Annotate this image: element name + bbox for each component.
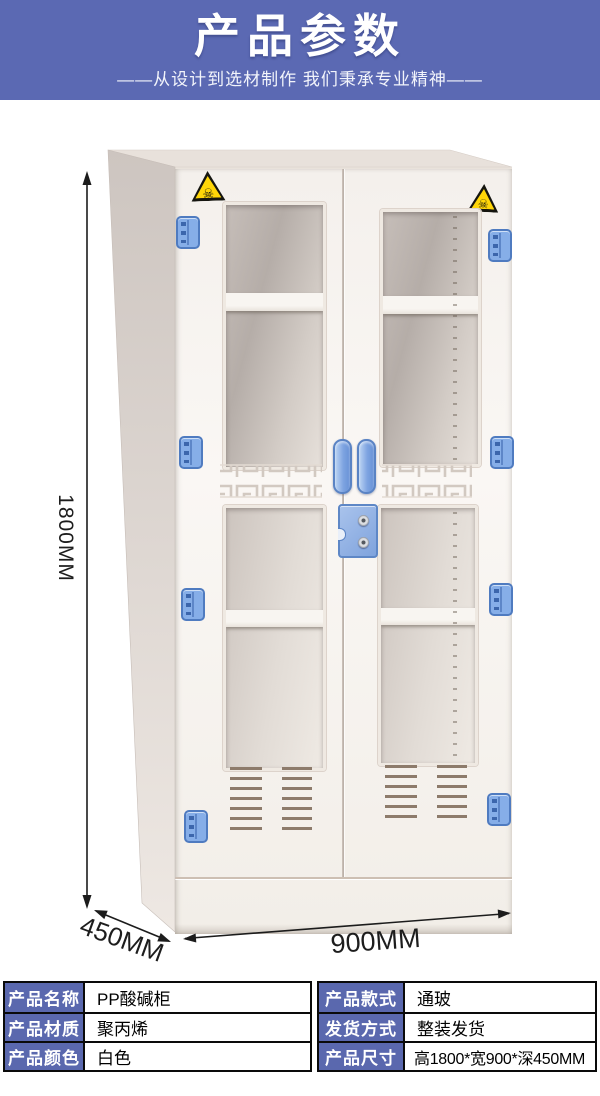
spec-table-right: 产品款式 通玻 发货方式 整装发货 产品尺寸 高1800*宽900*深450MM bbox=[317, 981, 597, 1072]
spec-value: 白色 bbox=[85, 1041, 310, 1070]
lock-notch bbox=[338, 528, 346, 541]
left-door-handle bbox=[333, 439, 352, 494]
left-door-lower-window bbox=[223, 505, 326, 771]
right-door-upper-window bbox=[380, 209, 481, 467]
left-door-upper-window bbox=[223, 202, 326, 470]
hinge bbox=[176, 216, 200, 249]
vent-slots bbox=[385, 765, 417, 823]
hinge bbox=[179, 436, 203, 469]
skull-icon: ☠ bbox=[191, 186, 225, 200]
spec-label: 产品材质 bbox=[5, 1012, 85, 1041]
cabinet-top-face bbox=[108, 150, 512, 167]
hinge bbox=[487, 793, 511, 826]
height-dimension-line bbox=[83, 171, 92, 909]
spec-value: PP酸碱柜 bbox=[85, 983, 310, 1012]
vent-slots bbox=[282, 767, 312, 832]
hinge bbox=[181, 588, 205, 621]
door-bottom-seam bbox=[175, 877, 512, 879]
shelf-pin-strip bbox=[453, 216, 457, 460]
interior-shelf bbox=[383, 296, 478, 314]
spec-table: 产品名称 PP酸碱柜 产品材质 聚丙烯 产品颜色 白色 产品款式 通玻 发货方式… bbox=[3, 981, 597, 1072]
product-parameter-sheet: 产品参数 ——从设计到选材制作 我们秉承专业精神—— ☠ bbox=[0, 0, 600, 1096]
spec-value: 聚丙烯 bbox=[85, 1012, 310, 1041]
right-door-lower-window bbox=[378, 505, 478, 766]
spec-label: 产品款式 bbox=[319, 983, 405, 1012]
hinge bbox=[489, 583, 513, 616]
hinge bbox=[490, 436, 514, 469]
cabinet-front: ☠ ☠ bbox=[175, 167, 512, 934]
spec-value: 高1800*宽900*深450MM bbox=[405, 1041, 595, 1070]
vent-slots bbox=[437, 765, 467, 821]
spec-label: 产品颜色 bbox=[5, 1041, 85, 1070]
interior-shelf bbox=[381, 608, 475, 625]
interior-shelf bbox=[226, 293, 323, 311]
hinge bbox=[488, 229, 512, 262]
shelf-pin-strip bbox=[453, 512, 457, 759]
spec-label: 发货方式 bbox=[319, 1012, 405, 1041]
cabinet-figure: ☠ ☠ bbox=[0, 0, 600, 1096]
right-door-handle bbox=[357, 439, 376, 494]
poison-warning-icon: ☠ bbox=[190, 170, 225, 201]
spec-label: 产品名称 bbox=[5, 983, 85, 1012]
screw bbox=[358, 515, 369, 526]
hinge bbox=[184, 810, 208, 843]
height-dimension-label: 1800MM bbox=[53, 483, 77, 593]
spec-label: 产品尺寸 bbox=[319, 1041, 405, 1070]
screw bbox=[358, 537, 369, 548]
spec-value: 整装发货 bbox=[405, 1012, 595, 1041]
vent-slots bbox=[230, 767, 262, 833]
spec-table-left: 产品名称 PP酸碱柜 产品材质 聚丙烯 产品颜色 白色 bbox=[3, 981, 312, 1072]
spec-value: 通玻 bbox=[405, 983, 595, 1012]
cabinet-lock bbox=[338, 504, 378, 558]
interior-shelf bbox=[226, 610, 323, 627]
depth-dimension-label: 450MM bbox=[66, 906, 178, 971]
cabinet-side-panel bbox=[108, 150, 175, 932]
